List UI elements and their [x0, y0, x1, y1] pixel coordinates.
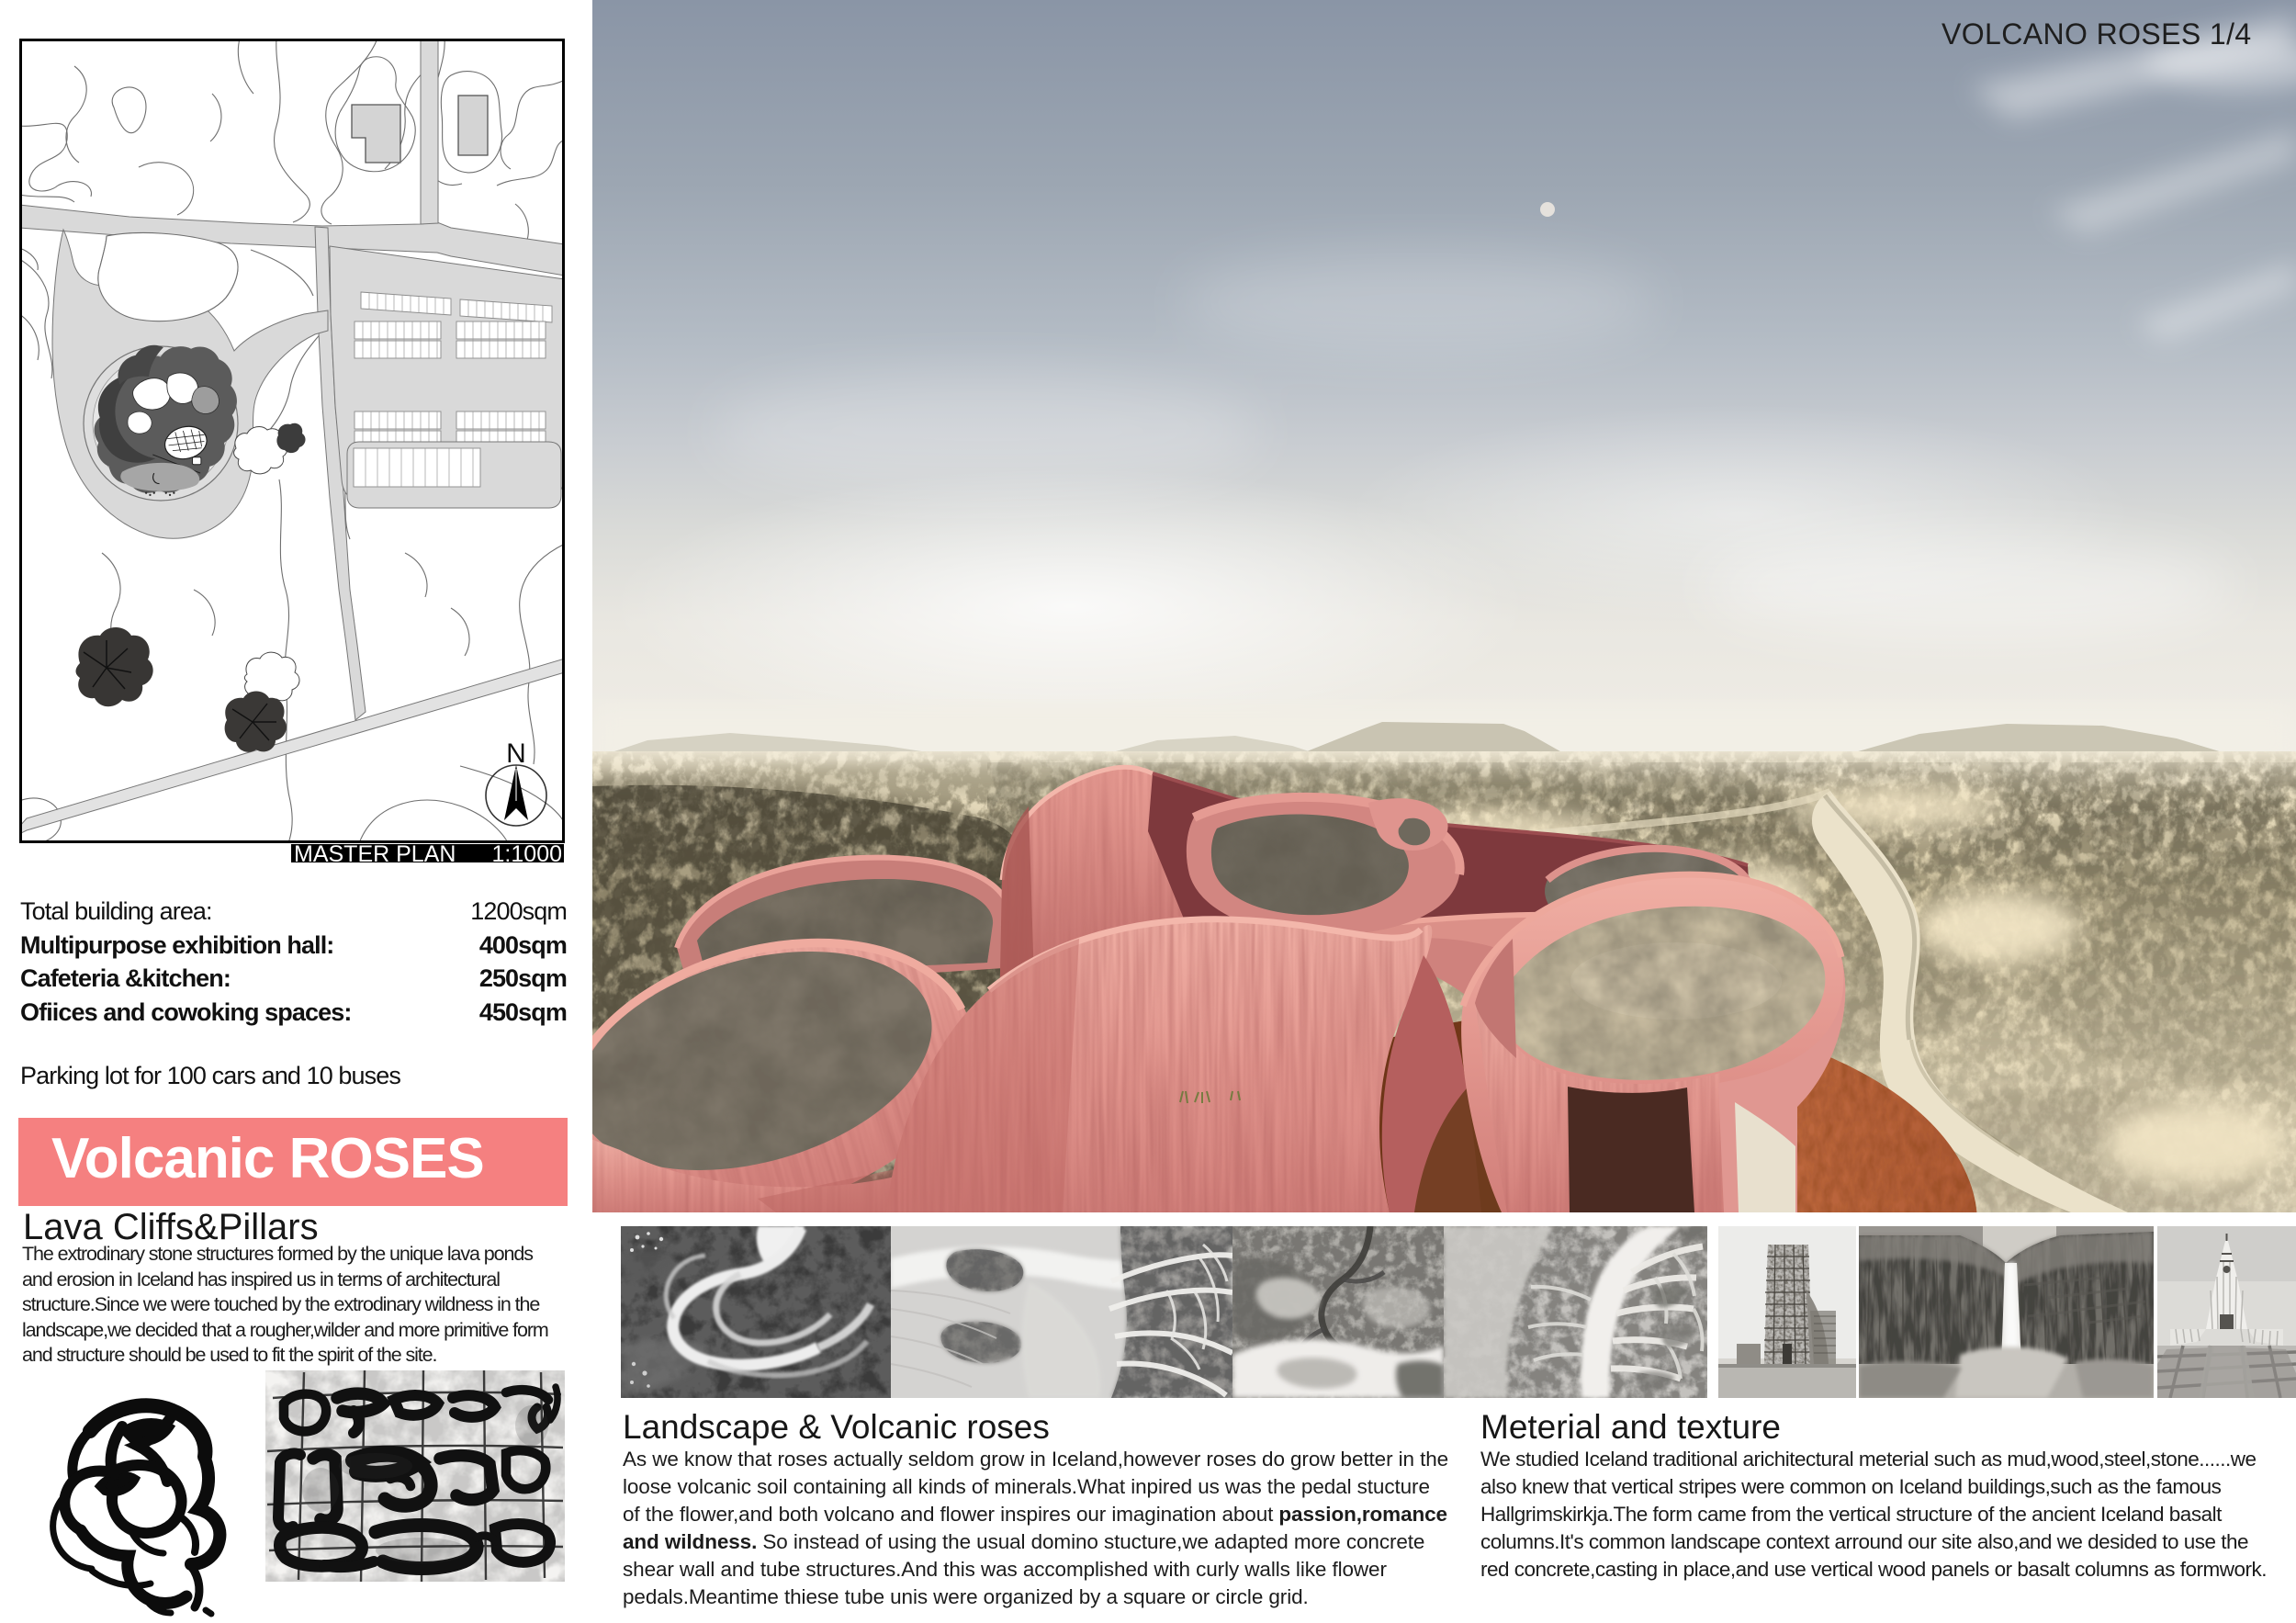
svg-text:N: N: [506, 738, 526, 769]
